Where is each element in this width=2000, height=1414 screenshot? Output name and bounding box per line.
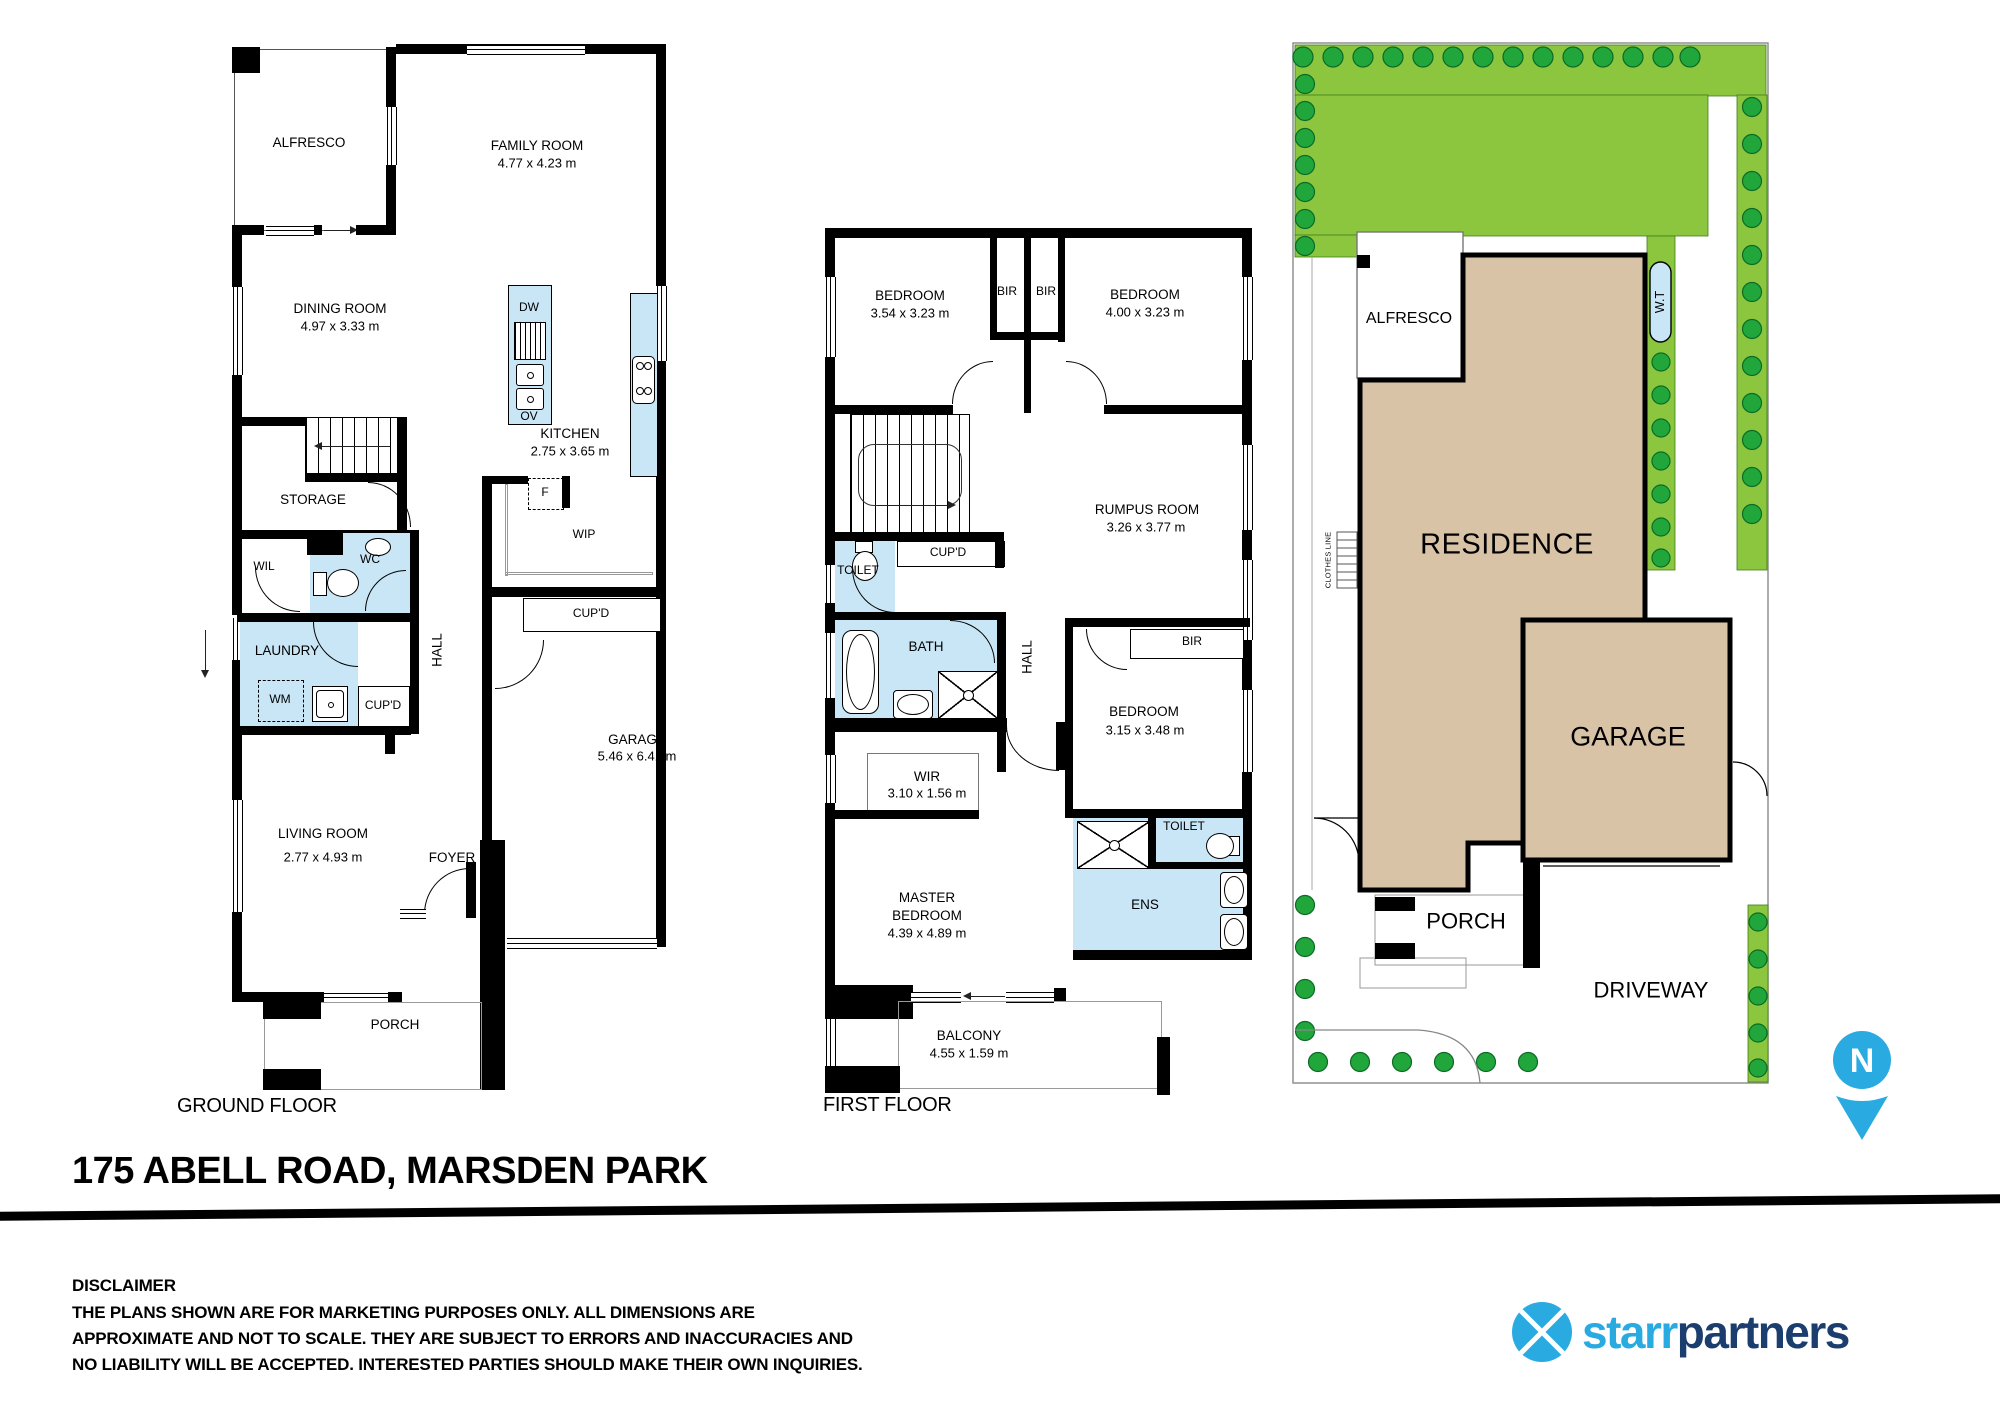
window: [826, 755, 836, 803]
ens-shower-icon: [1077, 821, 1150, 869]
door-arc: [1066, 361, 1107, 404]
arrow-line: [969, 996, 1005, 997]
circle-shape: [1309, 1053, 1328, 1072]
rect-shape: [1293, 43, 1768, 1083]
burner-dot: [636, 387, 644, 395]
ff-toilet2-label: TOILET: [1163, 820, 1205, 834]
wall-segment: [482, 587, 666, 597]
wall-segment: [307, 533, 343, 555]
wall-segment: [1065, 618, 1250, 627]
bir3-label: BIR: [1182, 635, 1202, 649]
garage-label: GARAGE: [608, 732, 666, 748]
bedroom3-label: BEDROOM: [1109, 704, 1179, 720]
circle-shape: [1296, 183, 1315, 202]
circle-shape: [1743, 320, 1762, 339]
wall-segment: [386, 165, 396, 231]
ff-hall-label: HALL: [1020, 640, 1035, 674]
door-arc: [1006, 726, 1059, 771]
page-title: 175 ABELL ROAD, MARSDEN PARK: [72, 1150, 708, 1193]
wall-segment: [263, 1069, 321, 1090]
wall-segment: [314, 225, 322, 235]
circle-shape: [1443, 47, 1463, 67]
circle-shape: [1503, 47, 1523, 67]
wall-segment: [1148, 818, 1156, 866]
circle-shape: [1743, 505, 1762, 524]
wall-segment: [1157, 1037, 1170, 1095]
disclaimer-line-3: NO LIABILITY WILL BE ACCEPTED. INTERESTE…: [72, 1355, 863, 1375]
cupd-garage-label: CUP'D: [573, 607, 609, 621]
living-room-dims: 2.77 x 4.93 m: [284, 851, 363, 866]
bedroom1-label: BEDROOM: [875, 288, 945, 304]
residence-outline: [1360, 255, 1645, 890]
circle-shape: [1473, 47, 1493, 67]
window: [467, 45, 585, 55]
family-room-dims: 4.77 x 4.23 m: [498, 157, 577, 172]
cupd-hall-label: CUP'D: [365, 699, 401, 713]
wall-segment: [995, 532, 1004, 568]
laundry-sink-icon: [312, 686, 348, 722]
rect-shape: [1748, 905, 1768, 1082]
circle-shape: [1383, 47, 1403, 67]
basin-bowl: [1224, 918, 1244, 946]
rect-shape: [1523, 858, 1540, 968]
disclaimer-heading: DISCLAIMER: [72, 1276, 176, 1296]
circle-shape: [1749, 950, 1767, 968]
disclaimer-line-2: APPROXIMATE AND NOT TO SCALE. THEY ARE S…: [72, 1329, 853, 1349]
oven-label: OV: [520, 410, 537, 424]
circle-shape: [1743, 172, 1762, 191]
rect-shape: [1357, 232, 1463, 378]
wall-segment: [833, 612, 1006, 620]
wall-segment: [232, 912, 242, 1002]
ff-cupd-label: CUP'D: [930, 546, 966, 560]
circle-shape: [1435, 1053, 1454, 1072]
circle-shape: [1749, 913, 1767, 931]
toilet-icon: [313, 572, 327, 596]
window: [657, 286, 667, 361]
wall-segment: [1054, 988, 1066, 1001]
wall-segment: [1148, 862, 1250, 869]
burner-dot: [644, 387, 652, 395]
residence-label: RESIDENCE: [1420, 528, 1594, 561]
disclaimer-line-1: THE PLANS SHOWN ARE FOR MARKETING PURPOS…: [72, 1303, 755, 1323]
wil-label: WIL: [253, 560, 274, 574]
circle-shape: [1623, 47, 1643, 67]
floor-outline: [505, 572, 653, 575]
wall-segment: [833, 810, 979, 819]
bathtub-icon: [842, 630, 879, 714]
wall-segment: [388, 992, 402, 1002]
circle-shape: [1353, 47, 1373, 67]
rect-shape: [1357, 255, 1370, 268]
circle-shape: [1743, 98, 1762, 117]
rect-shape: [1375, 897, 1415, 911]
circle-shape: [1833, 1031, 1891, 1089]
sink-rack-icon: [514, 322, 546, 360]
wir-dims: 3.10 x 1.56 m: [888, 787, 967, 802]
site-alfresco-label: ALFRESCO: [1366, 310, 1452, 328]
ff-toilet1-label: TOILET: [837, 564, 879, 578]
path-shape: [1733, 762, 1767, 796]
rect-shape: [1295, 235, 1463, 257]
door-arc: [1086, 629, 1127, 670]
circle-shape: [1296, 237, 1315, 256]
rect-shape: [1737, 95, 1767, 570]
wall-segment: [562, 476, 570, 508]
master-label-2: BEDROOM: [892, 908, 962, 924]
circle-shape: [1743, 357, 1762, 376]
circle-shape: [1533, 47, 1553, 67]
circle-shape: [1743, 431, 1762, 450]
path-shape: [1337, 540, 1357, 580]
circle-shape: [1296, 156, 1315, 175]
family-room-label: FAMILY ROOM: [491, 138, 584, 154]
wall-segment: [656, 44, 666, 286]
circle-shape: [1749, 987, 1767, 1005]
alfresco-label: ALFRESCO: [273, 135, 346, 151]
cooktop-icon: [516, 388, 544, 410]
wall-segment: [356, 225, 396, 235]
wall-segment: [482, 476, 492, 846]
window: [1243, 560, 1253, 640]
path-shape: [1836, 1096, 1888, 1140]
circle-shape: [1593, 47, 1613, 67]
ground-floor-title: GROUND FLOOR: [177, 1095, 337, 1118]
starr-partners-logo-text: starrpartners: [1582, 1305, 1849, 1359]
circle-shape: [1296, 896, 1315, 915]
basin-bowl: [897, 694, 929, 715]
wall-segment: [232, 375, 242, 615]
circle-shape: [1323, 47, 1343, 67]
gf-porch-label: PORCH: [371, 1017, 420, 1033]
circle-shape: [1477, 1053, 1496, 1072]
window: [233, 800, 243, 912]
burner-dot: [527, 396, 534, 403]
wall-segment: [1242, 360, 1252, 445]
bedroom1-dims: 3.54 x 3.23 m: [871, 307, 950, 322]
bedroom2-label: BEDROOM: [1110, 287, 1180, 303]
circle-shape: [1351, 1053, 1370, 1072]
arrow-line: [320, 446, 390, 447]
path-shape: [1314, 818, 1359, 863]
tub-bowl: [846, 634, 875, 710]
circle-shape: [1652, 419, 1670, 437]
circle-shape: [1743, 283, 1762, 302]
wc-label: WC: [360, 553, 380, 567]
circle-shape: [1743, 209, 1762, 228]
wall-segment: [1024, 340, 1031, 413]
wall-segment: [1065, 809, 1250, 818]
circle-shape: [1652, 518, 1670, 536]
circle-shape: [1393, 1053, 1412, 1072]
arrow-line: [205, 630, 206, 672]
basin-bowl: [1224, 876, 1244, 904]
wall-segment: [825, 803, 835, 985]
wir-label: WIR: [914, 769, 940, 785]
driveway-label: DRIVEWAY: [1594, 977, 1709, 1002]
circle-shape: [1293, 47, 1313, 67]
wall-segment: [480, 840, 505, 1090]
circle-shape: [1680, 47, 1700, 67]
clothes-line-label: CLOTHES LINE: [1324, 532, 1333, 589]
window: [826, 277, 836, 357]
dining-room-dims: 4.97 x 3.33 m: [301, 320, 380, 335]
path-shape: [1295, 1030, 1480, 1083]
wall-segment: [1073, 950, 1252, 960]
shower-drain: [1109, 840, 1120, 851]
arrow-line: [878, 505, 950, 506]
rumpus-dims: 3.26 x 3.77 m: [1107, 521, 1186, 536]
wall-segment: [237, 613, 411, 622]
dining-room-label: DINING ROOM: [294, 301, 387, 317]
circle-shape: [1749, 1024, 1767, 1042]
site-garage-label: GARAGE: [1570, 721, 1686, 752]
door-arc: [495, 640, 544, 689]
circle-shape: [1743, 246, 1762, 265]
wall-segment: [825, 228, 835, 277]
circle-shape: [1296, 938, 1315, 957]
window: [233, 287, 243, 375]
divider-line: [0, 1194, 2000, 1221]
wall-segment: [237, 417, 307, 426]
circle-shape: [1296, 75, 1315, 94]
kitchen-dims: 2.75 x 3.65 m: [531, 445, 610, 460]
wall-segment: [1024, 238, 1031, 338]
circle-shape: [1743, 468, 1762, 487]
arrow-head: [201, 670, 209, 678]
shower-icon: [938, 671, 998, 719]
first-floor-title: FIRST FLOOR: [823, 1094, 952, 1117]
ens-label: ENS: [1131, 897, 1159, 913]
circle-shape: [1296, 210, 1315, 229]
master-label-1: MASTER: [899, 890, 955, 906]
wall-segment: [263, 1002, 321, 1019]
bir1-label: BIR: [997, 285, 1017, 299]
laundry-label: LAUNDRY: [255, 643, 319, 659]
bath-label: BATH: [908, 639, 943, 655]
arrow-line: [324, 230, 352, 231]
burner-dot: [636, 362, 644, 370]
wall-segment: [386, 47, 396, 107]
floorplan-page: DW OV F: [0, 0, 2000, 1414]
wall-segment: [1242, 530, 1252, 560]
circle-shape: [1519, 1053, 1538, 1072]
wm-label: WM: [269, 693, 290, 707]
living-room-label: LIVING ROOM: [278, 826, 368, 842]
balcony-label: BALCONY: [937, 1028, 1002, 1044]
window: [266, 226, 314, 236]
circle-shape: [1652, 549, 1670, 567]
fridge-label: F: [541, 486, 548, 500]
starr-partners-logo-icon: [1512, 1302, 1572, 1362]
circle-shape: [1420, 965, 1437, 982]
trees: [1293, 47, 1767, 1077]
wall-segment: [835, 405, 953, 414]
gf-hall-label: HALL: [430, 633, 445, 667]
circle-shape: [1743, 135, 1762, 154]
wall-segment: [1056, 722, 1065, 770]
site-porch-label: PORCH: [1426, 908, 1505, 933]
window: [400, 909, 426, 919]
master-dims: 4.39 x 4.89 m: [888, 927, 967, 942]
wall-segment: [1104, 405, 1244, 414]
arrow-head: [963, 992, 971, 1000]
wall-segment: [997, 612, 1006, 722]
ens-basin-icon-2: [1220, 914, 1248, 950]
door-arc: [424, 868, 470, 914]
window: [1243, 690, 1253, 772]
brand-starr: starr: [1582, 1306, 1677, 1358]
toilet-icon: [1206, 833, 1234, 859]
circle-shape: [1652, 353, 1670, 371]
wall-segment: [833, 718, 1007, 732]
circle-shape: [1296, 129, 1315, 148]
circle-shape: [1743, 394, 1762, 413]
circle-shape: [1413, 47, 1433, 67]
brand-partners: partners: [1677, 1306, 1849, 1358]
circle-shape: [1370, 965, 1387, 982]
wall-segment: [825, 228, 1252, 238]
arrow-head: [948, 501, 956, 509]
ens-basin-icon: [1220, 872, 1248, 908]
window: [826, 1019, 836, 1067]
wall-segment: [990, 238, 997, 338]
circle-shape: [1296, 102, 1315, 121]
north-label: N: [1850, 1042, 1875, 1080]
circle-shape: [1296, 1022, 1315, 1041]
circle-shape: [1749, 1059, 1767, 1077]
circle-shape: [1395, 965, 1412, 982]
wall-segment: [825, 532, 1003, 541]
floor-outline: [505, 484, 508, 576]
wall-segment: [232, 225, 242, 287]
wall-segment: [232, 47, 260, 73]
wall-segment: [385, 726, 395, 754]
circle-shape: [1652, 452, 1670, 470]
cooktop-icon: [516, 364, 544, 386]
wall-segment: [990, 332, 1065, 340]
circle-shape: [1296, 980, 1315, 999]
wall-segment: [232, 992, 324, 1002]
north-indicator-icon: N: [1833, 1031, 1891, 1140]
rect-shape: [1295, 95, 1708, 236]
bedroom3-dims: 3.15 x 3.48 m: [1106, 724, 1185, 739]
window: [387, 107, 397, 165]
wall-segment: [825, 1066, 900, 1093]
garage-door: [507, 938, 657, 949]
circle-shape: [1653, 47, 1673, 67]
storage-label: STORAGE: [280, 492, 346, 508]
circle-shape: [1445, 965, 1462, 982]
rumpus-label: RUMPUS ROOM: [1095, 502, 1199, 518]
wall-segment: [1065, 618, 1073, 818]
rect-shape: [1360, 958, 1466, 988]
circle-shape: [1652, 485, 1670, 503]
foyer-label: FOYER: [429, 850, 476, 866]
wall-segment: [1058, 238, 1065, 342]
wall-segment: [1242, 228, 1252, 277]
burner-dot: [328, 702, 334, 708]
window: [1243, 277, 1253, 360]
bath-basin-icon: [893, 690, 933, 719]
kitchen-label: KITCHEN: [540, 426, 599, 442]
rect-shape: [1337, 532, 1357, 588]
toilet-icon: [327, 569, 359, 597]
bedroom2-dims: 4.00 x 3.23 m: [1106, 306, 1185, 321]
rect-shape: [1295, 45, 1766, 96]
rect-shape: [1647, 236, 1675, 570]
wip-label: WIP: [573, 528, 596, 542]
bir2-label: BIR: [1036, 285, 1056, 299]
balcony-dims: 4.55 x 1.59 m: [930, 1047, 1009, 1062]
burner-dot: [644, 362, 652, 370]
circle-shape: [1563, 47, 1583, 67]
wall-segment: [305, 473, 407, 482]
wall-segment: [997, 732, 1006, 772]
water-tank-label: W.T: [1653, 291, 1667, 313]
dishwasher-label: DW: [519, 301, 539, 315]
rect-shape: [1375, 943, 1415, 959]
lawn: [1295, 45, 1768, 1082]
cooktop-icon: [632, 356, 655, 404]
garage-dims: 5.46 x 6.41 m: [598, 750, 677, 765]
burner-dot: [527, 372, 534, 379]
shower-drain: [963, 690, 974, 701]
arrow-head: [314, 442, 322, 450]
circle-shape: [1652, 386, 1670, 404]
wall-segment: [410, 530, 419, 734]
stair-rail: [858, 444, 962, 506]
window: [1243, 445, 1253, 530]
door-arc: [952, 361, 993, 404]
